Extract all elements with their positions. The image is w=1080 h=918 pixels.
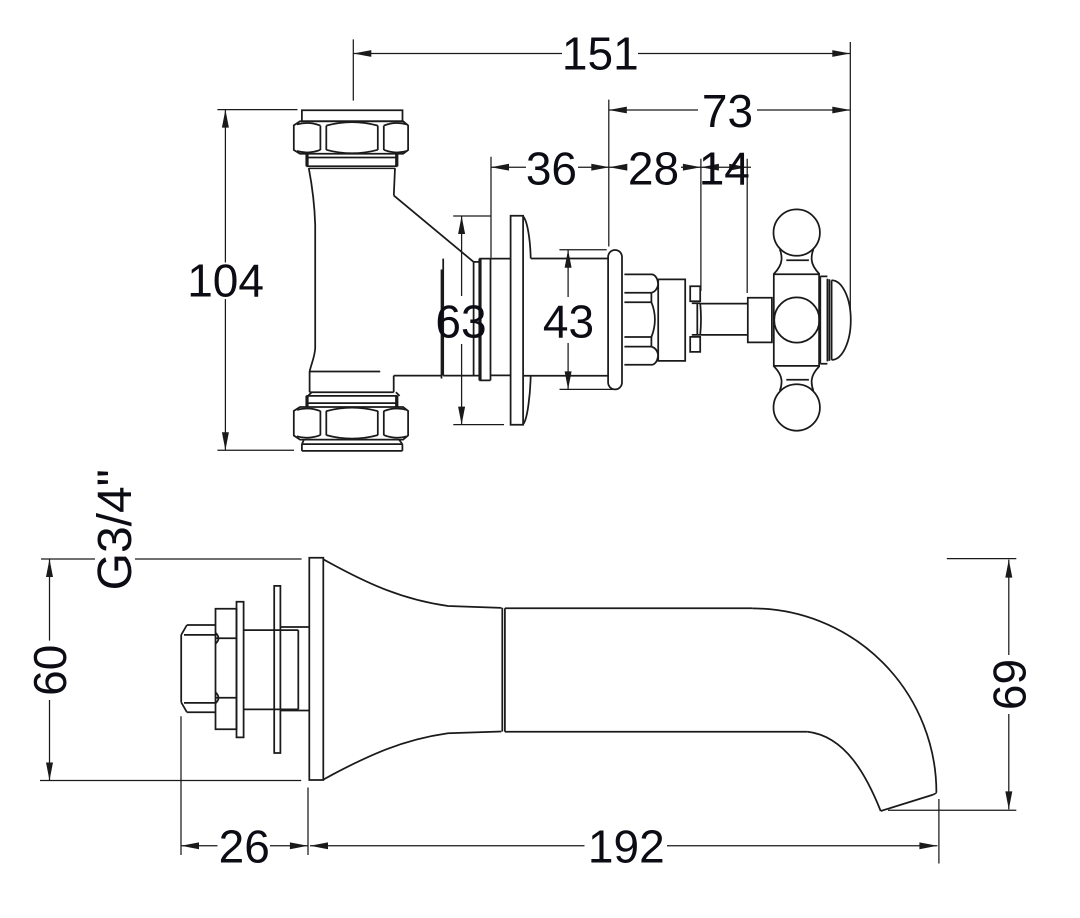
svg-text:G3/4": G3/4" (89, 469, 142, 590)
svg-text:73: 73 (702, 85, 753, 137)
svg-text:36: 36 (526, 143, 577, 195)
svg-text:43: 43 (543, 295, 594, 347)
svg-text:104: 104 (187, 255, 264, 307)
svg-text:151: 151 (562, 27, 639, 79)
svg-text:63: 63 (435, 295, 486, 347)
svg-text:28: 28 (628, 143, 679, 195)
svg-text:69: 69 (983, 659, 1035, 710)
svg-text:60: 60 (24, 645, 76, 696)
svg-text:192: 192 (588, 820, 665, 872)
svg-text:26: 26 (219, 820, 270, 872)
svg-text:14: 14 (699, 143, 750, 195)
